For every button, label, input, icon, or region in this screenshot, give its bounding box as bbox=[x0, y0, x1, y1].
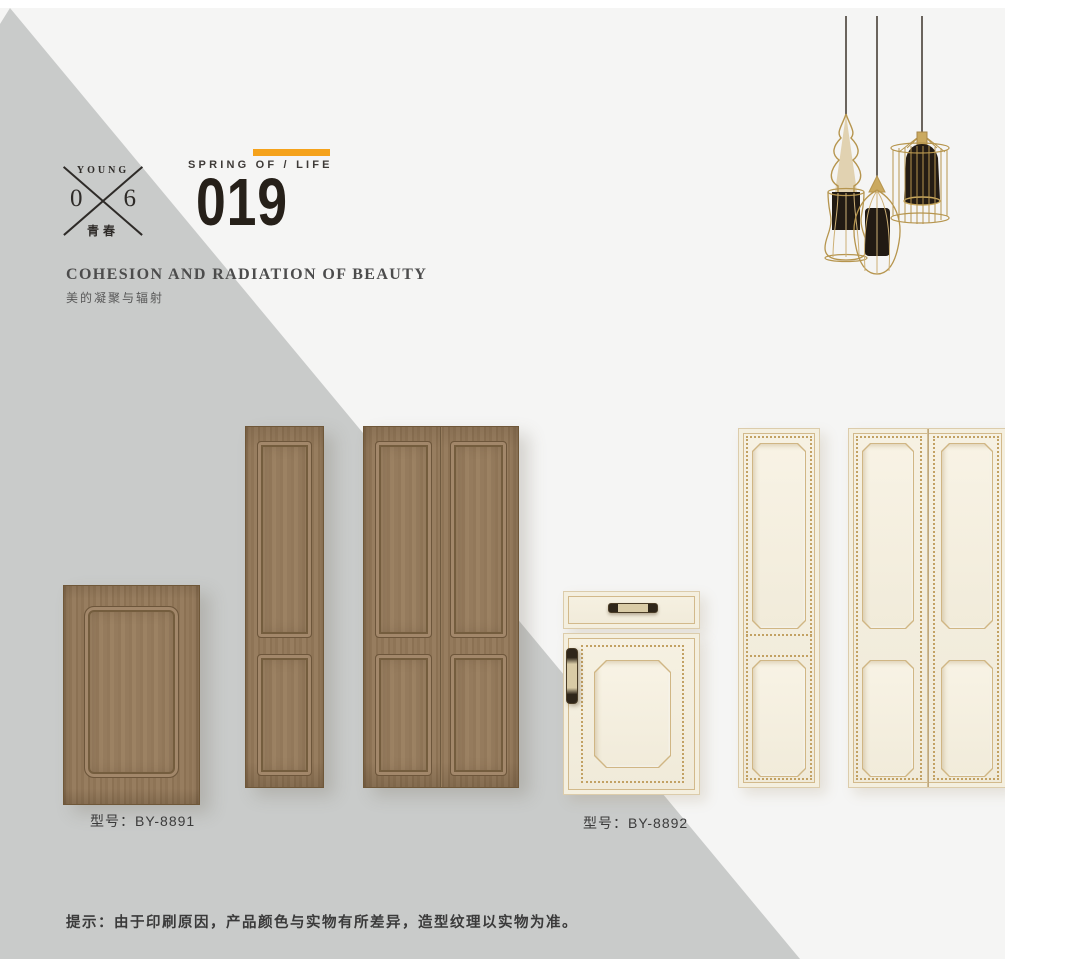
cream-drawer-front bbox=[563, 591, 700, 629]
cream-door-double bbox=[848, 428, 1005, 788]
wood-door-panel bbox=[257, 441, 312, 638]
cream-door-panel bbox=[752, 660, 806, 777]
wood-door-small bbox=[63, 585, 200, 805]
panel-field bbox=[942, 661, 992, 776]
door-handle bbox=[566, 648, 578, 704]
lamp-pagoda bbox=[825, 114, 867, 262]
mid-rail bbox=[746, 634, 812, 657]
cream-door-panel bbox=[862, 443, 914, 629]
badge-digit-left: 0 bbox=[70, 185, 83, 213]
lamp-cylinder bbox=[891, 132, 949, 224]
cream-door-panel bbox=[862, 660, 914, 777]
wood-door-panel bbox=[450, 654, 507, 776]
badge-digit-right: 6 bbox=[124, 185, 137, 213]
wood-door-panel bbox=[257, 654, 312, 776]
wood-door-double bbox=[363, 426, 519, 788]
page-number: 019 bbox=[196, 174, 288, 232]
door-leaf-split bbox=[927, 429, 929, 787]
door-leaf-split bbox=[440, 427, 442, 787]
model-label-by-8891: 型号：BY-8891 bbox=[90, 811, 195, 831]
cream-door-panel bbox=[752, 443, 806, 629]
title-cn: 美的凝聚与辐射 bbox=[66, 289, 164, 306]
cream-door-panel bbox=[594, 660, 671, 768]
panel-field bbox=[595, 661, 670, 767]
title-en: COHESION AND RADIATION OF BEAUTY bbox=[66, 266, 427, 284]
pendant-lamps-illustration bbox=[795, 8, 1005, 293]
panel-field bbox=[863, 661, 913, 776]
cream-door-tall bbox=[738, 428, 820, 788]
catalog-photo-block: YOUNG 0 6 青春 SPRING OF / LIFE 019 COHESI… bbox=[0, 8, 1005, 959]
drawer-handle bbox=[608, 603, 658, 613]
wood-door-panel bbox=[84, 606, 179, 778]
panel-field bbox=[753, 444, 805, 628]
footer-note: 提示：由于印刷原因，产品颜色与实物有所差异，造型纹理以实物为准。 bbox=[66, 911, 578, 932]
model-label-by-8892: 型号：BY-8892 bbox=[583, 813, 688, 833]
wood-door-tall bbox=[245, 426, 324, 788]
wood-door-panel bbox=[375, 441, 432, 638]
panel-field bbox=[942, 444, 992, 628]
catalog-page: { "header": { "badge": { "word": "YOUNG"… bbox=[0, 0, 1080, 959]
young-06-badge: YOUNG 0 6 青春 bbox=[62, 163, 144, 239]
panel-field bbox=[753, 661, 805, 776]
wood-door-panel bbox=[450, 441, 507, 638]
badge-word: YOUNG bbox=[62, 165, 144, 176]
cream-cabinet-door bbox=[563, 633, 700, 795]
badge-word-cn: 青春 bbox=[62, 222, 144, 239]
panel-field bbox=[863, 444, 913, 628]
wood-door-panel bbox=[375, 654, 432, 776]
accent-bar bbox=[253, 149, 330, 156]
cream-door-panel bbox=[941, 660, 993, 777]
cream-door-panel bbox=[941, 443, 993, 629]
